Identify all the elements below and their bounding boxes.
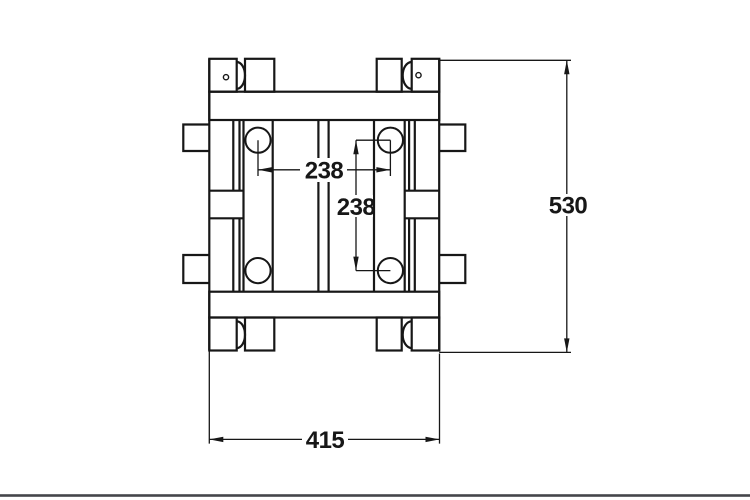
arrow-right-icon [426, 437, 440, 442]
dimension-arrowheads [209, 60, 569, 442]
bottom-left-roller-circle [245, 258, 270, 283]
top-right-relief-arc [403, 62, 412, 89]
frame-structure [183, 59, 465, 351]
left-notch-caps [209, 191, 243, 219]
dimension-lines [209, 60, 571, 443]
bottom-right-inner-block [377, 318, 402, 351]
right-bottom-side-tab [439, 255, 465, 283]
top-left-inner-block [245, 59, 274, 92]
drawing-canvas: 238 238 530 415 [0, 0, 750, 500]
top-right-inner-block [377, 59, 402, 92]
top-right-hole-circle [416, 73, 421, 78]
left-top-side-tab [183, 125, 209, 152]
bottom-right-outer-block [412, 318, 440, 351]
bottom-left-relief-arc [237, 321, 245, 348]
dim-label-overall-height: 530 [549, 193, 588, 220]
bottom-right-relief-arc [403, 321, 412, 348]
bottom-cross-band [209, 292, 439, 318]
arrow-down-icon [353, 257, 358, 271]
top-left-relief-arc [237, 62, 245, 89]
dim-label-vertical-span: 238 [337, 194, 376, 221]
arrow-down-icon [564, 338, 569, 352]
rollers [245, 128, 403, 284]
drill-holes [223, 73, 421, 80]
bottom-left-inner-block [245, 318, 274, 351]
top-cross-band [209, 92, 439, 120]
dim-label-overall-width: 415 [306, 427, 345, 454]
top-left-outer-block [209, 59, 236, 92]
arrow-left-icon [209, 437, 223, 442]
arrow-up-icon [564, 60, 569, 74]
top-left-hole-circle [223, 75, 228, 80]
bottom-left-outer-block [209, 318, 236, 351]
right-top-side-tab [439, 125, 465, 152]
arrow-up-icon [353, 140, 358, 154]
drawing-page: 238 238 530 415 [0, 0, 750, 500]
dimension-labels: 238 238 530 415 [305, 158, 588, 455]
footer-rule [0, 494, 750, 497]
dim-label-horizontal-span: 238 [305, 158, 344, 185]
center-spine-lines [318, 120, 328, 292]
right-notch-caps [405, 191, 440, 219]
arrow-right-icon [376, 167, 390, 172]
left-bottom-side-tab [183, 255, 209, 283]
arrow-left-icon [258, 167, 272, 172]
